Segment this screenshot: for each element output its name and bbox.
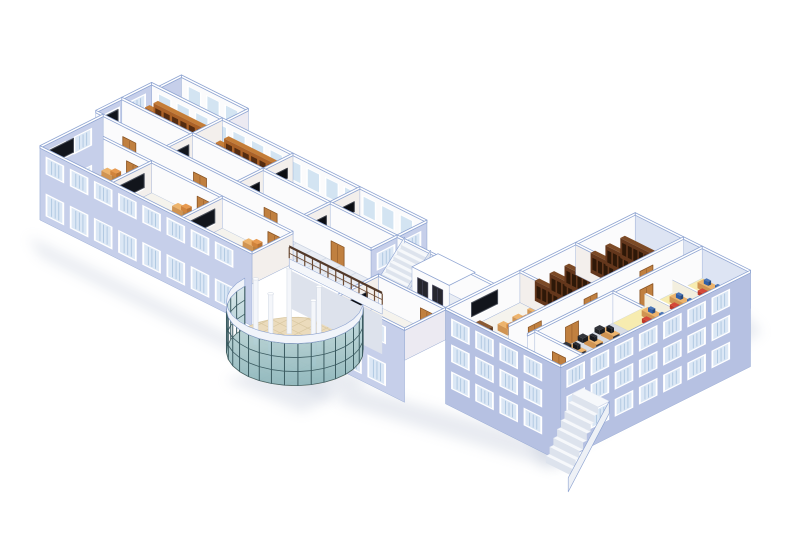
screenshot-root [0,0,800,550]
building-svg [0,0,800,550]
